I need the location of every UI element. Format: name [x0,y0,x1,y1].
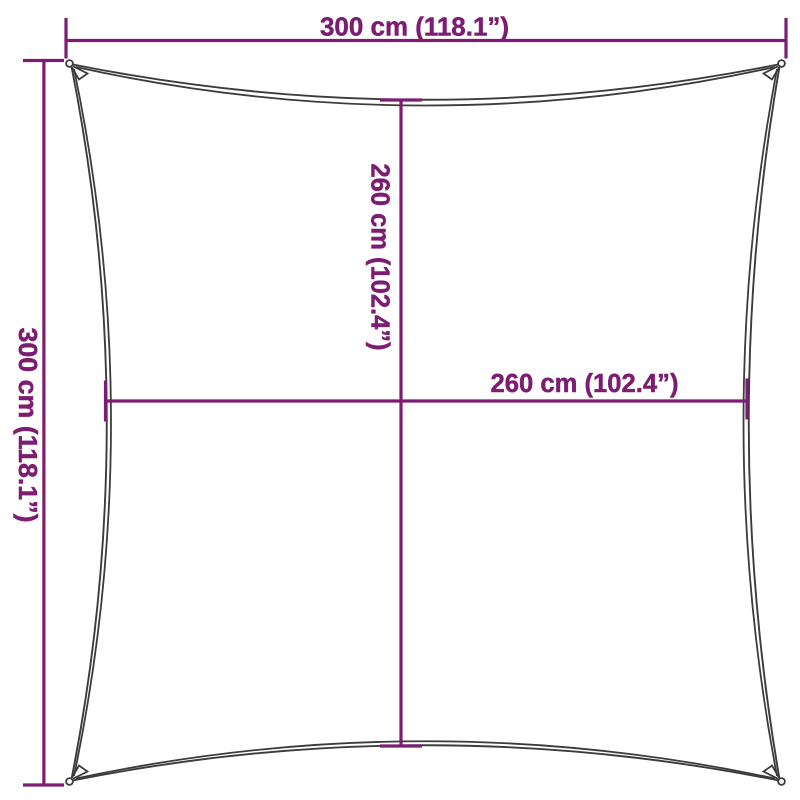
svg-text:260 cm (102.4”): 260 cm (102.4”) [491,368,679,398]
svg-text:300 cm (118.1”): 300 cm (118.1”) [320,12,509,42]
svg-text:260 cm (102.4”): 260 cm (102.4”) [366,164,396,351]
svg-text:300 cm (118.1”): 300 cm (118.1”) [13,328,43,523]
